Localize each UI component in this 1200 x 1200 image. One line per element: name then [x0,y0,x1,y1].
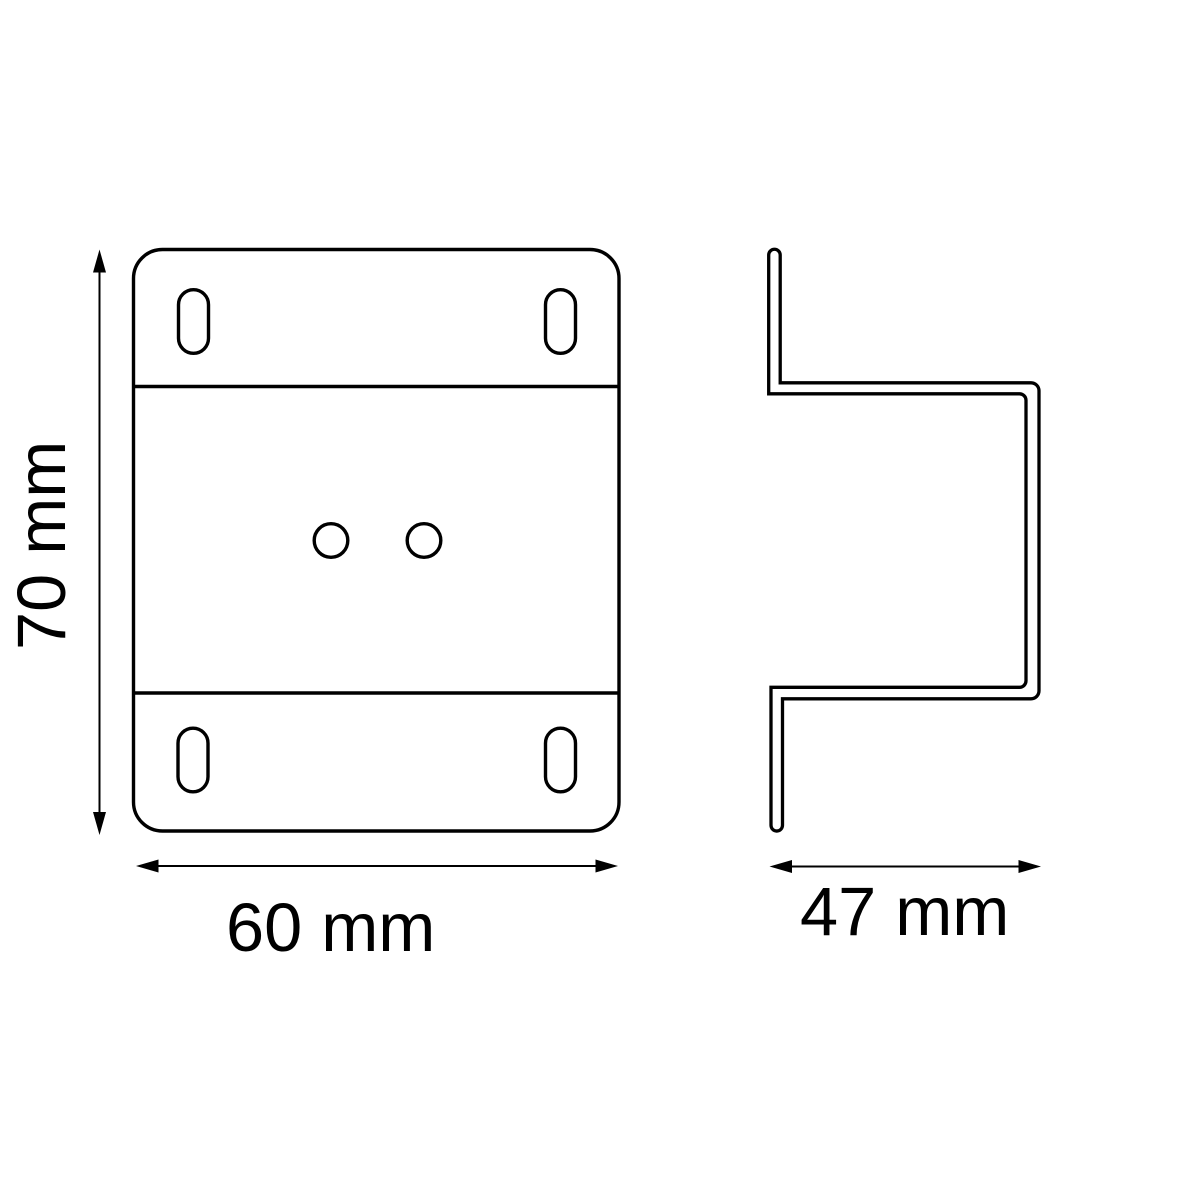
svg-text:47 mm: 47 mm [800,873,1009,950]
svg-text:70 mm: 70 mm [3,441,80,650]
svg-text:60 mm: 60 mm [226,889,435,966]
